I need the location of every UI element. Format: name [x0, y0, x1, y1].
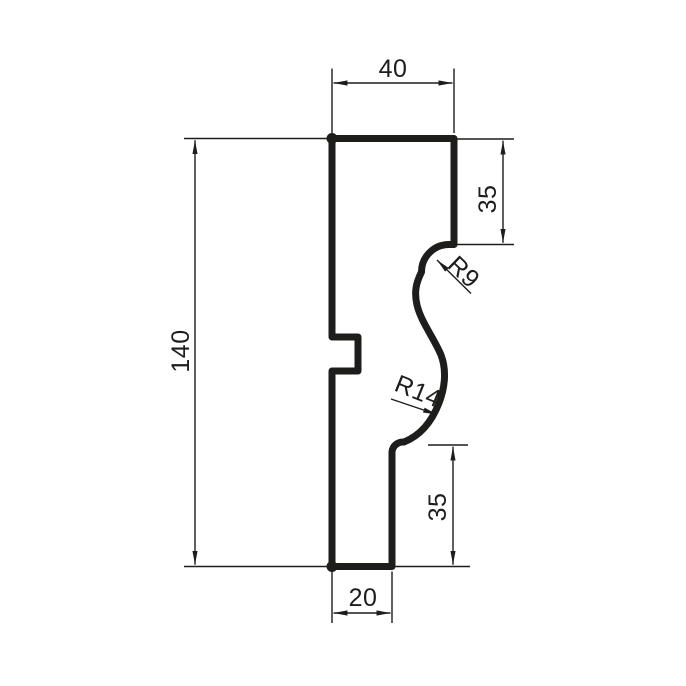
dimension-upper-right-height: 35 — [448, 139, 514, 245]
node-dot-top-left — [327, 133, 338, 144]
dimension-label-35-lower: 35 — [424, 493, 452, 522]
dimension-bottom-width: 20 — [332, 572, 392, 624]
drawing-canvas: 140 40 35 35 20 — [0, 0, 686, 686]
radius-callout-r9: R9 — [437, 251, 485, 294]
dimension-label-20: 20 — [349, 584, 378, 612]
dimension-lower-right-height: 35 — [424, 445, 468, 565]
radius-label-r14: R14 — [391, 370, 445, 414]
radius-label-r9: R9 — [442, 251, 485, 294]
dimension-top-width: 40 — [332, 55, 454, 133]
molding-profile-technical-drawing: 140 40 35 35 20 — [0, 0, 686, 686]
dimension-label-40: 40 — [379, 55, 408, 83]
dimension-label-35-upper: 35 — [474, 185, 502, 214]
dimension-label-140: 140 — [167, 329, 195, 372]
node-dot-bottom-left — [327, 561, 338, 572]
